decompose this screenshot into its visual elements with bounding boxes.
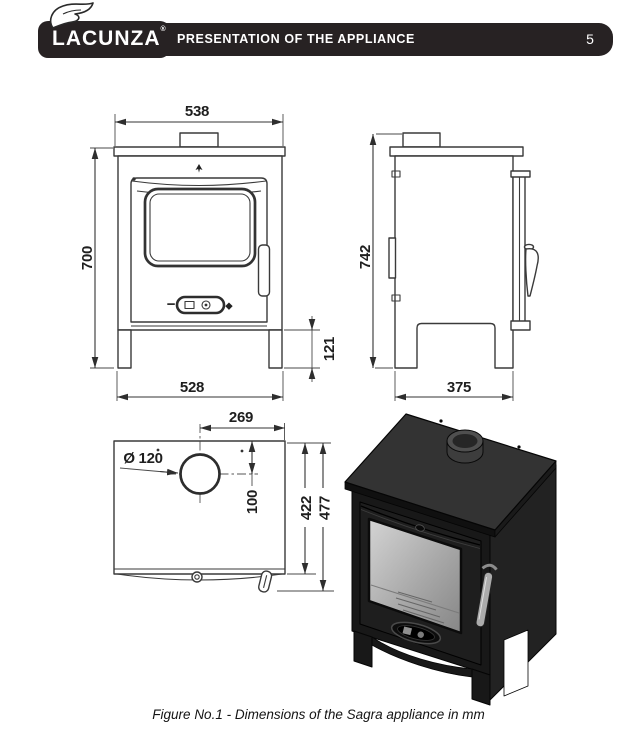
dim-side-depth: 375 — [395, 371, 513, 401]
front-glass-window — [145, 189, 255, 266]
dimension-figure: − ◆ 538 700 528 — [0, 0, 637, 740]
side-door-handle — [525, 244, 539, 296]
front-flue-collar — [180, 133, 218, 147]
front-left-leg — [118, 330, 131, 368]
side-latch — [389, 238, 396, 278]
svg-text:269: 269 — [229, 409, 253, 426]
svg-text:121: 121 — [321, 337, 338, 361]
top-flue-outlet — [181, 455, 220, 494]
svg-text:477: 477 — [317, 496, 334, 520]
svg-text:100: 100 — [244, 490, 261, 514]
stove-front-right-leg — [472, 669, 490, 705]
stove-side-leg-cutout — [504, 630, 528, 696]
svg-text:375: 375 — [447, 379, 471, 396]
air-plus-icon: ◆ — [225, 301, 234, 311]
front-top-plate — [114, 147, 285, 156]
stove-flue-collar-3d — [447, 430, 483, 463]
top-knob — [192, 572, 202, 582]
front-view: − ◆ 538 700 528 — [79, 103, 338, 401]
svg-text:422: 422 — [298, 496, 315, 520]
svg-text:742: 742 — [357, 245, 374, 269]
dim-front-leg-height: 121 — [284, 316, 338, 382]
manual-page: LACUNZA® PRESENTATION OF THE APPLIANCE 5 — [0, 0, 637, 740]
side-view: 742 375 — [357, 133, 538, 401]
svg-text:538: 538 — [185, 103, 209, 120]
stove-front-left-leg — [354, 631, 372, 667]
front-right-leg — [269, 330, 282, 368]
figure-caption: Figure No.1 - Dimensions of the Sagra ap… — [0, 707, 637, 722]
dim-front-height: 700 — [79, 148, 114, 368]
svg-text:700: 700 — [79, 246, 96, 270]
air-minus-label: − — [167, 296, 176, 313]
dim-front-bottom-width: 528 — [117, 371, 283, 401]
front-door-handle — [259, 245, 270, 296]
perspective-view — [345, 414, 556, 705]
top-view: 269 Ø 120 100 422 — [114, 409, 334, 593]
side-top-plate — [390, 147, 523, 156]
side-flue-collar — [403, 133, 440, 147]
svg-text:528: 528 — [180, 379, 204, 396]
dim-top-flue-offset: 269 — [200, 409, 285, 440]
svg-text:Ø 120: Ø 120 — [123, 450, 162, 467]
door-hinge-pin — [132, 177, 135, 180]
side-body — [395, 156, 513, 368]
